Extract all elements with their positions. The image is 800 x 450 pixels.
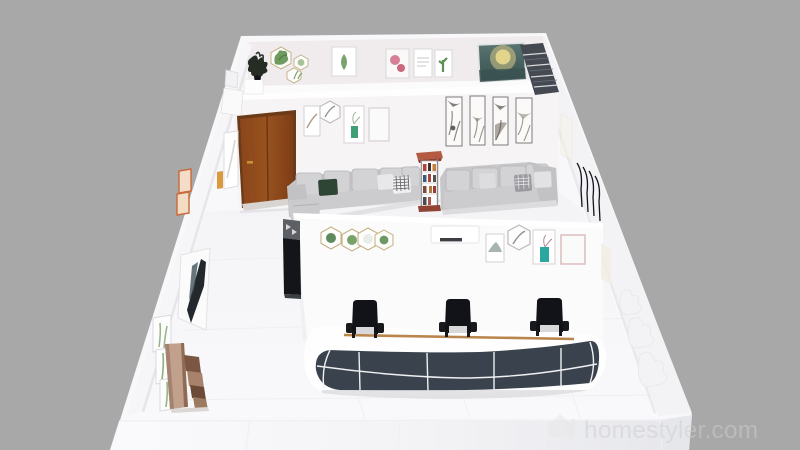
svg-text:homestyler.com: homestyler.com <box>584 417 758 444</box>
